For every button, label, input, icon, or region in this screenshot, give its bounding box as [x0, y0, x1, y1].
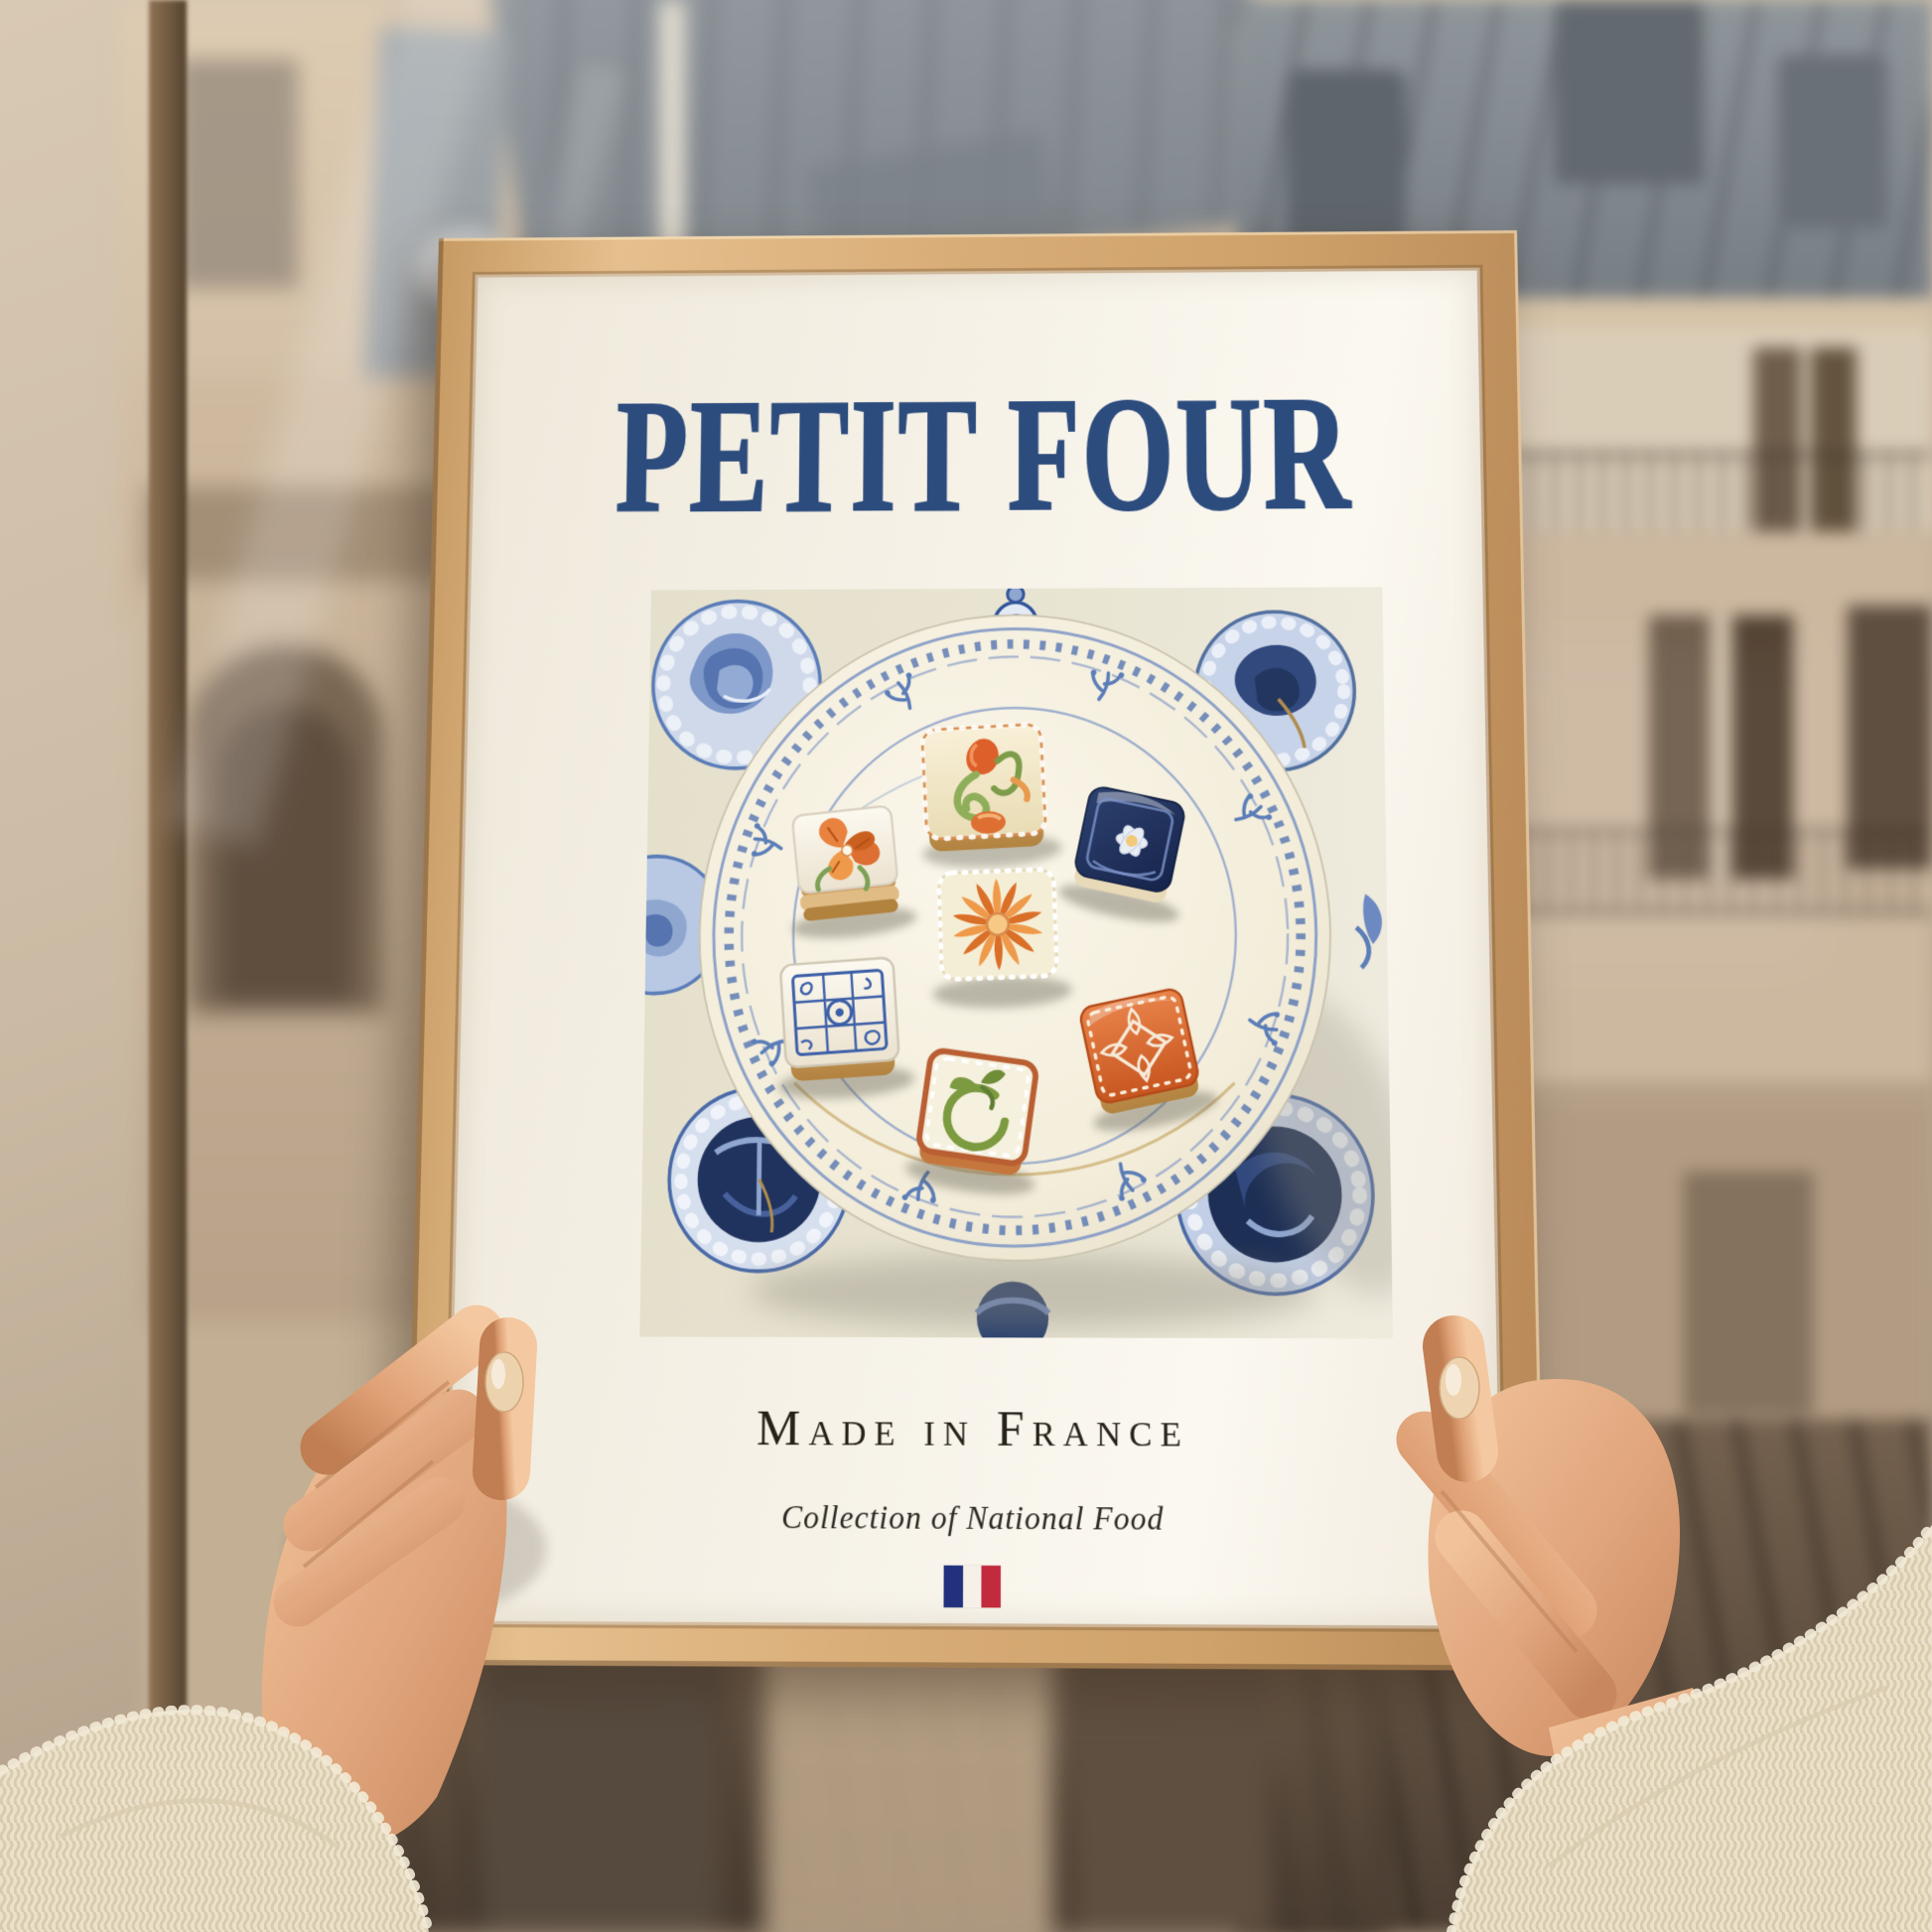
- dormer-window: [1555, 0, 1704, 184]
- flag-red-stripe: [982, 1566, 1001, 1607]
- petit-four-tulip: [916, 723, 1062, 871]
- petit-four-azulejo: [770, 956, 915, 1103]
- framed-poster: PETIT FOUR: [404, 230, 1546, 1671]
- french-flag-icon: [944, 1566, 1001, 1608]
- scene: PETIT FOUR: [0, 0, 1932, 1932]
- poster-subtitle: Made in France: [451, 1397, 1498, 1459]
- window: [1072, 1628, 1271, 1932]
- roof-dormer: [179, 60, 298, 288]
- poster-caption: Collection of National Food: [450, 1497, 1500, 1539]
- window: [1684, 1172, 1813, 1415]
- window: [482, 1648, 715, 1932]
- flag-white-stripe: [963, 1566, 982, 1607]
- petit-four-dahlia: [929, 869, 1073, 1011]
- dormer-window: [1778, 55, 1887, 228]
- poster-title: PETIT FOUR: [472, 362, 1481, 548]
- flag-blue-stripe: [944, 1566, 963, 1607]
- petit-four-illustration: [639, 587, 1393, 1338]
- poster-paper: PETIT FOUR: [448, 270, 1502, 1625]
- window-frame-edge: [149, 0, 187, 1932]
